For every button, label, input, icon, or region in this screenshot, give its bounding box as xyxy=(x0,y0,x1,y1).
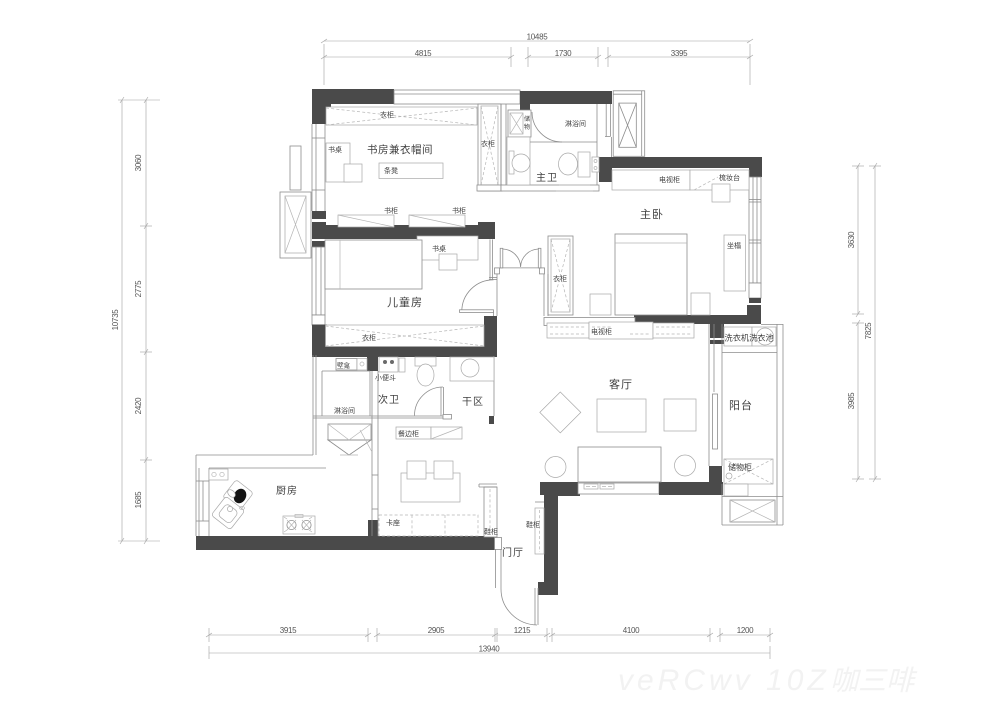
svg-text:3915: 3915 xyxy=(280,626,297,635)
svg-text:电视柜: 电视柜 xyxy=(591,327,612,336)
svg-text:13940: 13940 xyxy=(479,645,501,654)
svg-text:卡座: 卡座 xyxy=(386,518,400,527)
svg-text:2775: 2775 xyxy=(134,280,143,297)
svg-text:2420: 2420 xyxy=(134,397,143,414)
svg-text:电视柜: 电视柜 xyxy=(659,175,680,184)
svg-text:淋浴间: 淋浴间 xyxy=(565,119,586,128)
svg-text:阳台: 阳台 xyxy=(729,398,753,412)
svg-text:干区: 干区 xyxy=(462,396,484,408)
svg-text:储物柜: 储物柜 xyxy=(728,462,752,472)
svg-text:衣柜: 衣柜 xyxy=(481,139,495,148)
svg-text:鞋柜: 鞋柜 xyxy=(484,527,498,536)
svg-text:1730: 1730 xyxy=(555,49,572,58)
svg-text:3395: 3395 xyxy=(671,49,688,58)
svg-text:客厅: 客厅 xyxy=(609,377,633,391)
svg-text:梳妆台: 梳妆台 xyxy=(719,173,740,182)
svg-text:4100: 4100 xyxy=(623,626,640,635)
svg-text:书桌: 书桌 xyxy=(432,244,446,253)
svg-text:书柜: 书柜 xyxy=(452,206,466,215)
svg-text:鞋柜: 鞋柜 xyxy=(526,520,540,529)
svg-text:书柜: 书柜 xyxy=(384,206,398,215)
svg-text:儿童房: 儿童房 xyxy=(387,295,423,309)
svg-text:咖三啡: 咖三啡 xyxy=(830,665,918,696)
svg-text:10485: 10485 xyxy=(527,33,549,42)
svg-text:条凳: 条凳 xyxy=(384,166,398,175)
svg-text:2905: 2905 xyxy=(428,626,445,635)
svg-text:3630: 3630 xyxy=(847,231,856,248)
svg-text:衣柜: 衣柜 xyxy=(362,333,376,342)
svg-text:主卧: 主卧 xyxy=(640,208,664,221)
svg-text:坐榻: 坐榻 xyxy=(727,241,741,250)
svg-text:壁龛: 壁龛 xyxy=(337,361,351,370)
svg-text:4815: 4815 xyxy=(415,49,432,58)
svg-text:物: 物 xyxy=(524,123,530,131)
svg-text:3060: 3060 xyxy=(134,154,143,171)
svg-text:10735: 10735 xyxy=(111,309,120,331)
svg-text:餐边柜: 餐边柜 xyxy=(398,429,419,438)
svg-text:书房兼衣帽间: 书房兼衣帽间 xyxy=(367,143,433,156)
svg-text:衣柜: 衣柜 xyxy=(380,110,394,119)
svg-text:储: 储 xyxy=(524,115,530,123)
svg-text:厨房: 厨房 xyxy=(276,484,298,497)
svg-text:veRCwv 10Z: veRCwv 10Z xyxy=(618,664,830,697)
svg-text:淋浴间: 淋浴间 xyxy=(334,406,355,415)
svg-text:书桌: 书桌 xyxy=(328,145,342,154)
svg-text:次卫: 次卫 xyxy=(378,393,400,406)
svg-text:门厅: 门厅 xyxy=(502,546,524,559)
svg-text:衣柜: 衣柜 xyxy=(553,274,567,283)
svg-text:1200: 1200 xyxy=(737,626,754,635)
svg-text:1685: 1685 xyxy=(134,491,143,508)
svg-text:7825: 7825 xyxy=(864,322,873,339)
svg-text:主卫: 主卫 xyxy=(536,172,558,184)
svg-text:1215: 1215 xyxy=(514,626,531,635)
svg-text:3985: 3985 xyxy=(847,392,856,409)
svg-text:洗衣机洗衣池: 洗衣机洗衣池 xyxy=(725,333,774,343)
